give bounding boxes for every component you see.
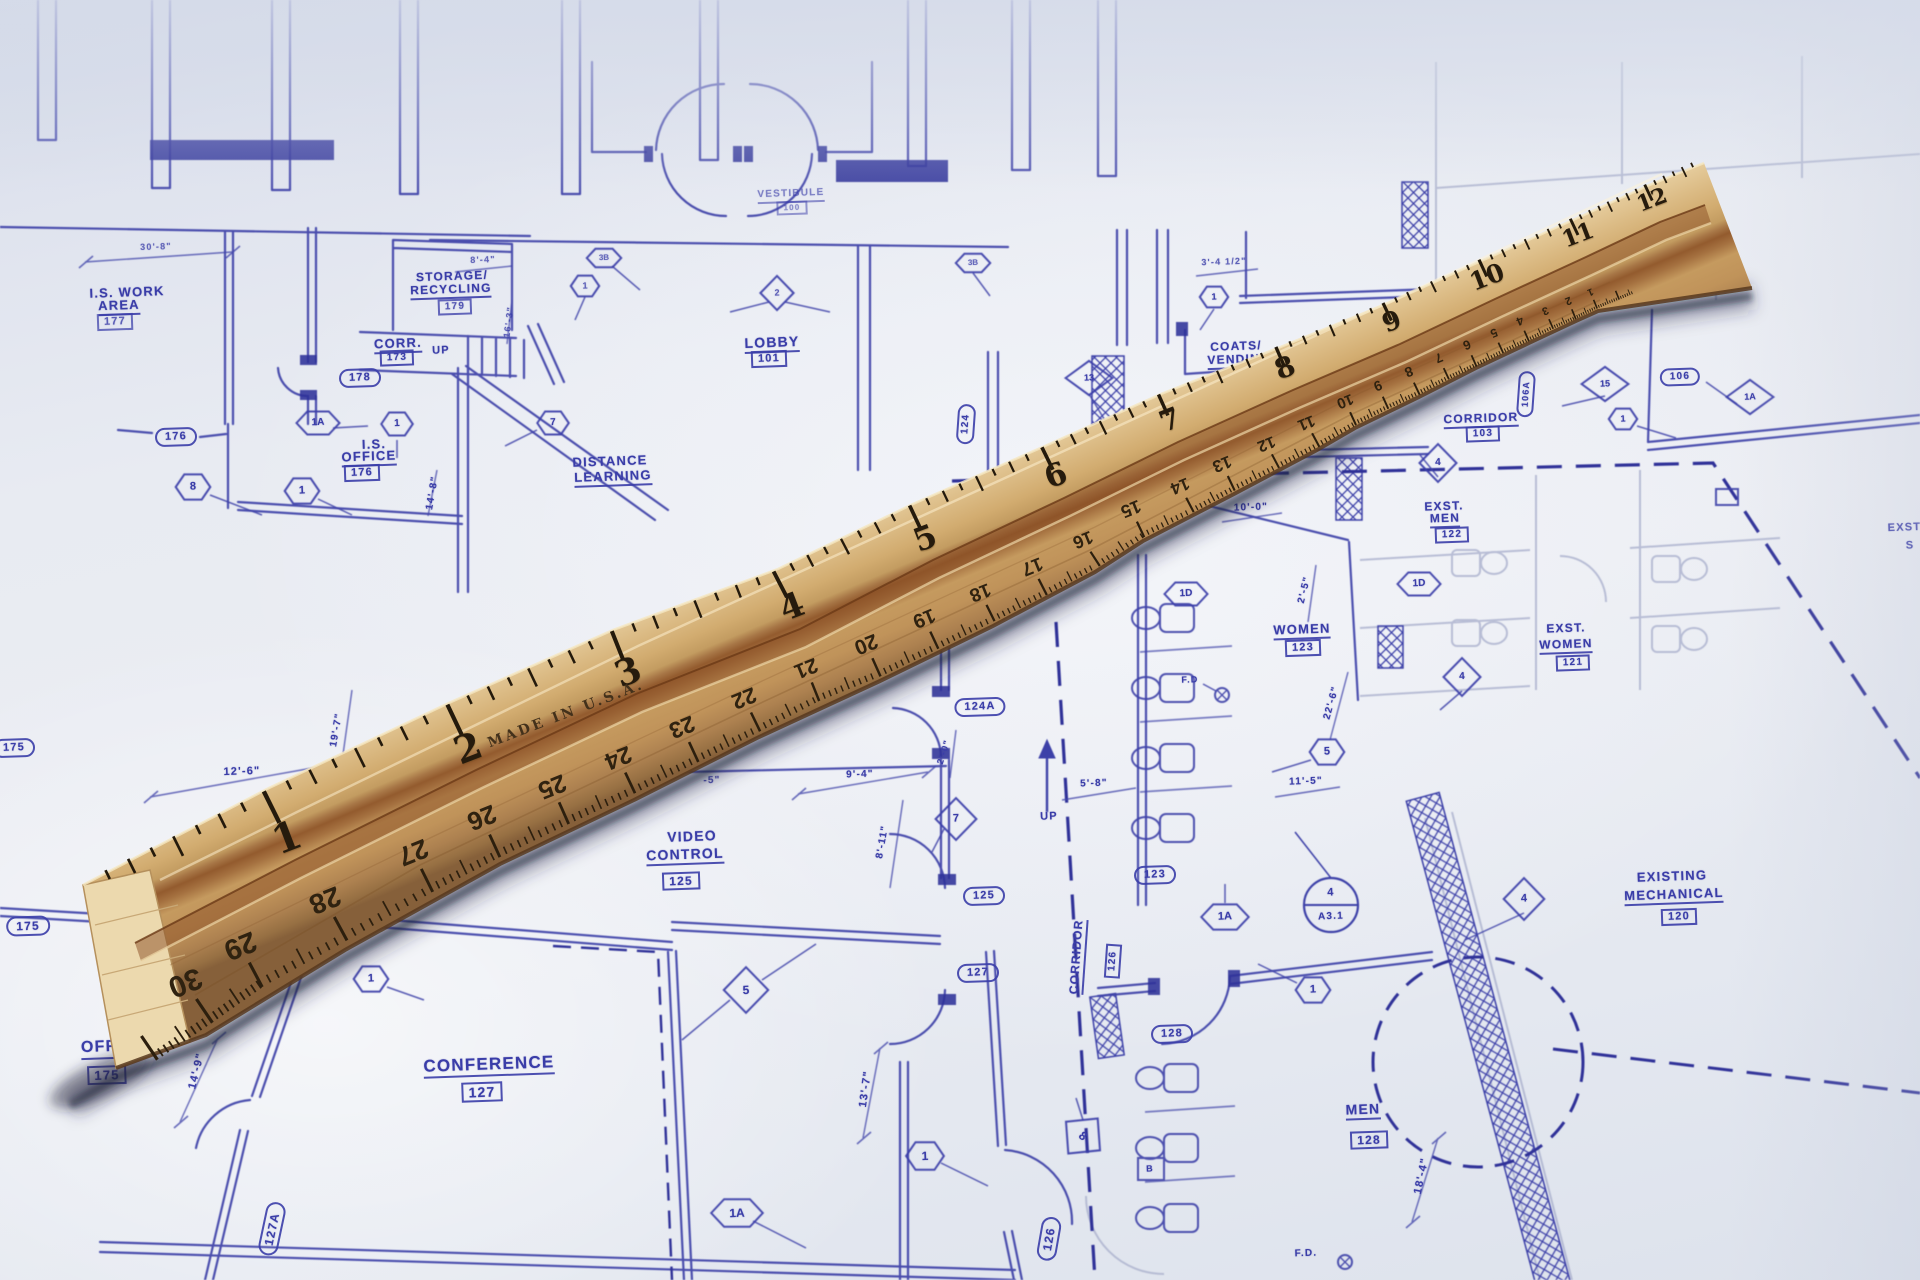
blueprint-photo: I.S. WORKAREA17730'-8"STORAGE/RECYCLING1… <box>0 0 1920 1280</box>
wooden-ruler <box>0 0 1920 1280</box>
ruler-body <box>83 163 1752 1068</box>
ruler-shadow <box>43 296 1752 1120</box>
ruler-tick <box>1691 163 1693 167</box>
